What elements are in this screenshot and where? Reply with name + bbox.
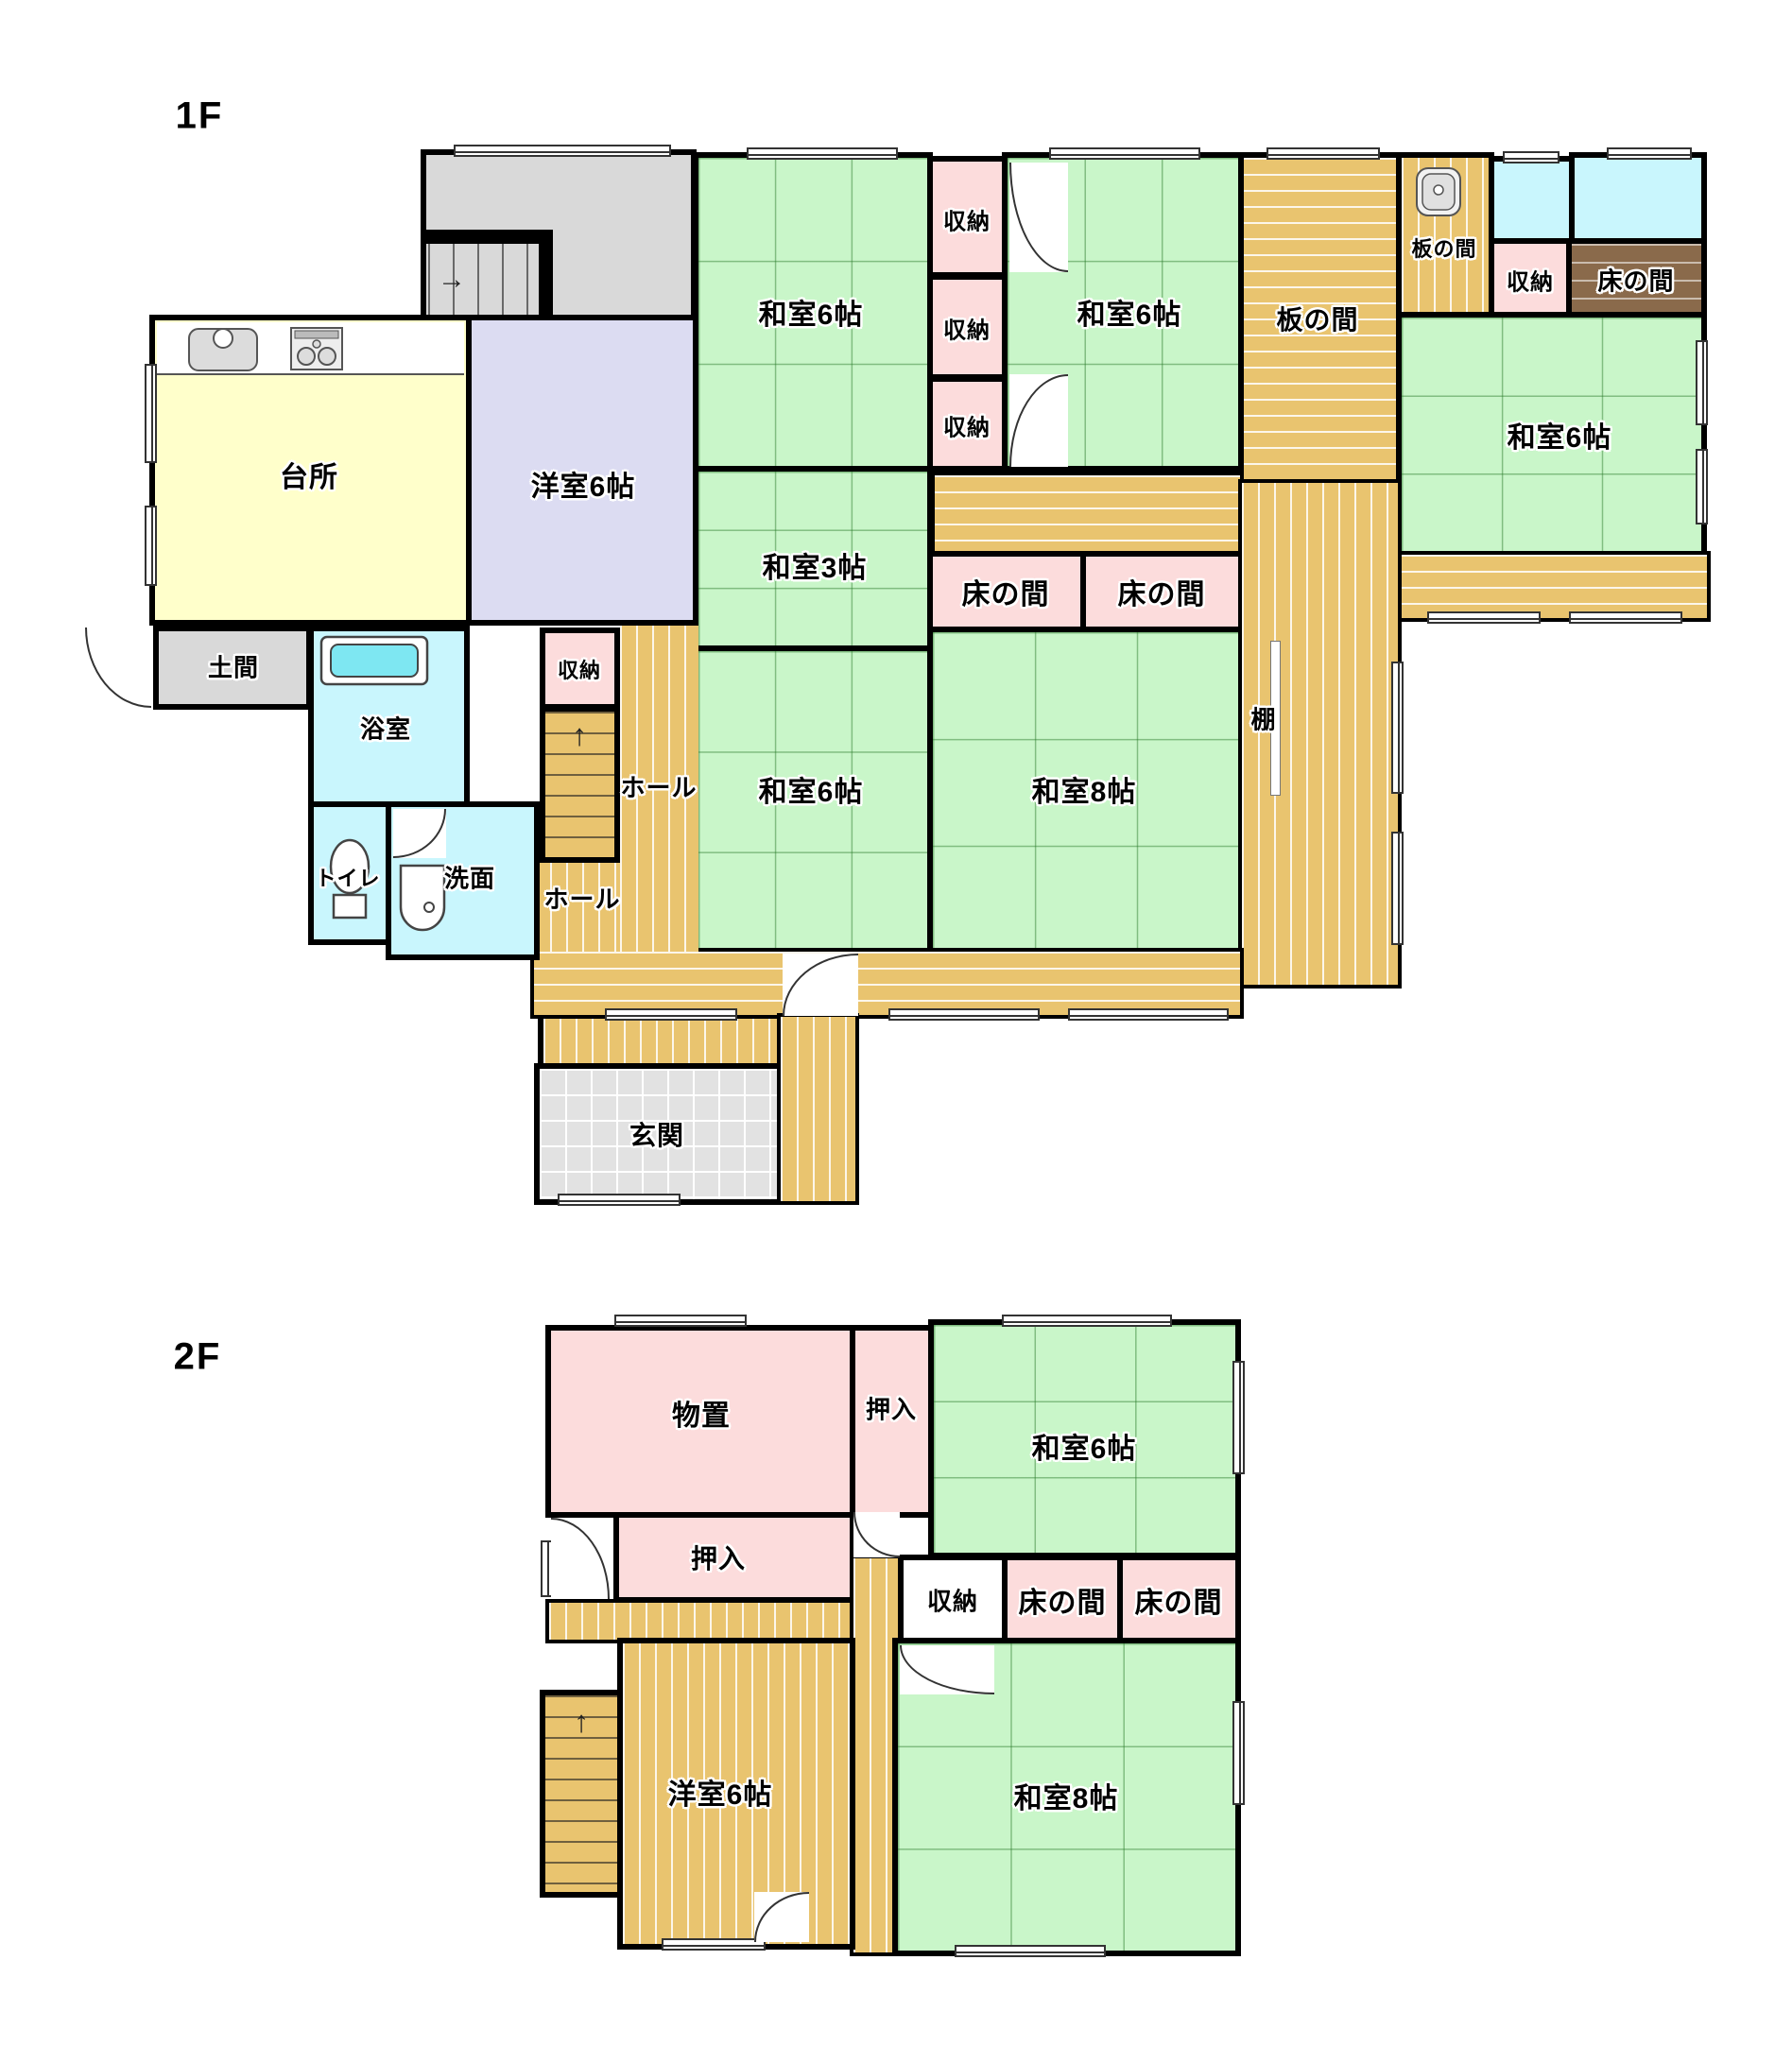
window-1f-top-cyan2 xyxy=(1607,147,1692,160)
floor-1f-title: 1F xyxy=(176,95,224,138)
door-closet-lower xyxy=(1009,374,1068,467)
window-1f-top-tatami-nw xyxy=(747,147,898,160)
window-kitchen-left-1 xyxy=(145,364,157,463)
window-south-2 xyxy=(888,1008,1040,1021)
window-south-3 xyxy=(1068,1008,1229,1021)
floor-2f-title: 2F xyxy=(174,1336,222,1379)
bathtub-icon xyxy=(319,635,429,691)
door-entrance-hall xyxy=(783,954,858,1016)
label-hall-b: ホール xyxy=(543,881,620,916)
label-entrance: 玄関 xyxy=(629,1115,684,1153)
label-closet-top-right: 収納 xyxy=(1507,264,1554,297)
wall-stair-top xyxy=(426,230,553,244)
window-1f-top-cyan1 xyxy=(1503,151,1559,163)
door-washroom xyxy=(393,809,446,858)
window-2f-top-2 xyxy=(1002,1315,1172,1327)
arrow-up-icon-1f: ↑ xyxy=(572,718,587,753)
label-tatami6-c: 和室6帖 xyxy=(759,768,864,810)
window-east-corridor-2 xyxy=(1391,832,1404,945)
label-closet-2f: 収納 xyxy=(927,1583,978,1618)
label-tatami8-2f: 和室8帖 xyxy=(1014,1775,1119,1816)
window-2f-right-1 xyxy=(1232,1361,1245,1474)
arrow-up-icon-2f: ↑ xyxy=(574,1705,589,1740)
window-2f-bottom-2 xyxy=(662,1938,766,1951)
window-1f-top-hall xyxy=(454,145,671,157)
label-tokonoma-brown: 床の間 xyxy=(1597,263,1674,298)
label-shelf: 棚 xyxy=(1250,701,1276,736)
label-toilet: トイレ xyxy=(315,862,380,892)
label-itanoma-small: 板の間 xyxy=(1411,232,1476,263)
window-2f-top-1 xyxy=(614,1315,747,1327)
label-oshiire-b: 押入 xyxy=(691,1539,746,1576)
label-western6-1f: 洋室6帖 xyxy=(531,463,636,505)
door-western6-2f xyxy=(754,1892,809,1942)
window-kitchen-left-2 xyxy=(145,506,157,586)
room-cyan-2 xyxy=(1569,152,1707,244)
label-oshiire-a: 押入 xyxy=(866,1391,917,1426)
window-2f-right-2 xyxy=(1232,1701,1245,1805)
label-tokonoma-2f-1: 床の間 xyxy=(1019,1579,1107,1621)
window-east-corridor-1 xyxy=(1391,662,1404,794)
label-tatami3: 和室3帖 xyxy=(763,544,868,586)
door-doma-entry xyxy=(85,628,151,708)
entrance-side-corridor xyxy=(777,1013,859,1205)
label-storage-2f: 物置 xyxy=(672,1392,731,1434)
window-south-1 xyxy=(605,1008,737,1021)
label-closet-c: 収納 xyxy=(943,409,991,442)
arrow-right-icon: → xyxy=(438,264,466,296)
window-tatami6e-right-1 xyxy=(1696,340,1708,425)
label-bath: 浴室 xyxy=(360,711,411,746)
label-closet-b: 収納 xyxy=(943,312,991,345)
wall-stair-right xyxy=(539,230,553,317)
window-2f-bottom-1 xyxy=(955,1945,1106,1957)
window-entrance-bottom xyxy=(558,1194,681,1206)
window-tatami6e-right-2 xyxy=(1696,449,1708,524)
window-1f-top-tatami-n xyxy=(1049,147,1200,160)
room-cyan-1 xyxy=(1489,156,1575,244)
label-closet-stairs: 収納 xyxy=(558,654,601,684)
label-tatami6-nw: 和室6帖 xyxy=(759,291,864,333)
label-tokonoma-1: 床の間 xyxy=(962,571,1050,612)
corridor-middle xyxy=(931,472,1244,557)
label-itanoma-big: 板の間 xyxy=(1276,300,1358,337)
label-doma: 土間 xyxy=(208,649,259,684)
label-tatami8: 和室8帖 xyxy=(1032,768,1137,810)
window-east-wing-2 xyxy=(1569,611,1682,624)
gas-stove-icon xyxy=(289,326,344,376)
label-kitchen: 台所 xyxy=(280,454,338,495)
label-western6-2f: 洋室6帖 xyxy=(668,1771,773,1813)
label-tatami6-2f: 和室6帖 xyxy=(1032,1425,1137,1467)
door-hall-top-2f xyxy=(853,1512,900,1557)
kitchen-sink-icon xyxy=(187,325,259,377)
hand-wash-sink-icon xyxy=(1414,165,1463,223)
floor-plan: 1F → 台所 洋室6帖 和室6帖 収納 収納 収納 和室6帖 板の間 板の間 … xyxy=(0,0,1792,2046)
hall-band-2f xyxy=(545,1599,855,1643)
label-closet-a: 収納 xyxy=(943,203,991,236)
label-washroom: 洗面 xyxy=(444,860,495,895)
label-tatami6-n: 和室6帖 xyxy=(1077,291,1182,333)
window-east-wing-1 xyxy=(1427,611,1541,624)
entrance-hall-strip xyxy=(538,1019,779,1069)
label-tatami6-e: 和室6帖 xyxy=(1508,414,1612,456)
label-tokonoma-2: 床の間 xyxy=(1118,571,1206,612)
label-hall-a: ホール xyxy=(620,769,697,804)
wash-basin-icon xyxy=(397,862,448,937)
window-1f-top-itanoma xyxy=(1266,147,1380,160)
door-closet-upper xyxy=(1009,163,1068,272)
label-tokonoma-2f-2: 床の間 xyxy=(1135,1579,1223,1621)
door-tatami8-2f xyxy=(900,1645,994,1694)
door-storage-nook xyxy=(551,1518,610,1599)
